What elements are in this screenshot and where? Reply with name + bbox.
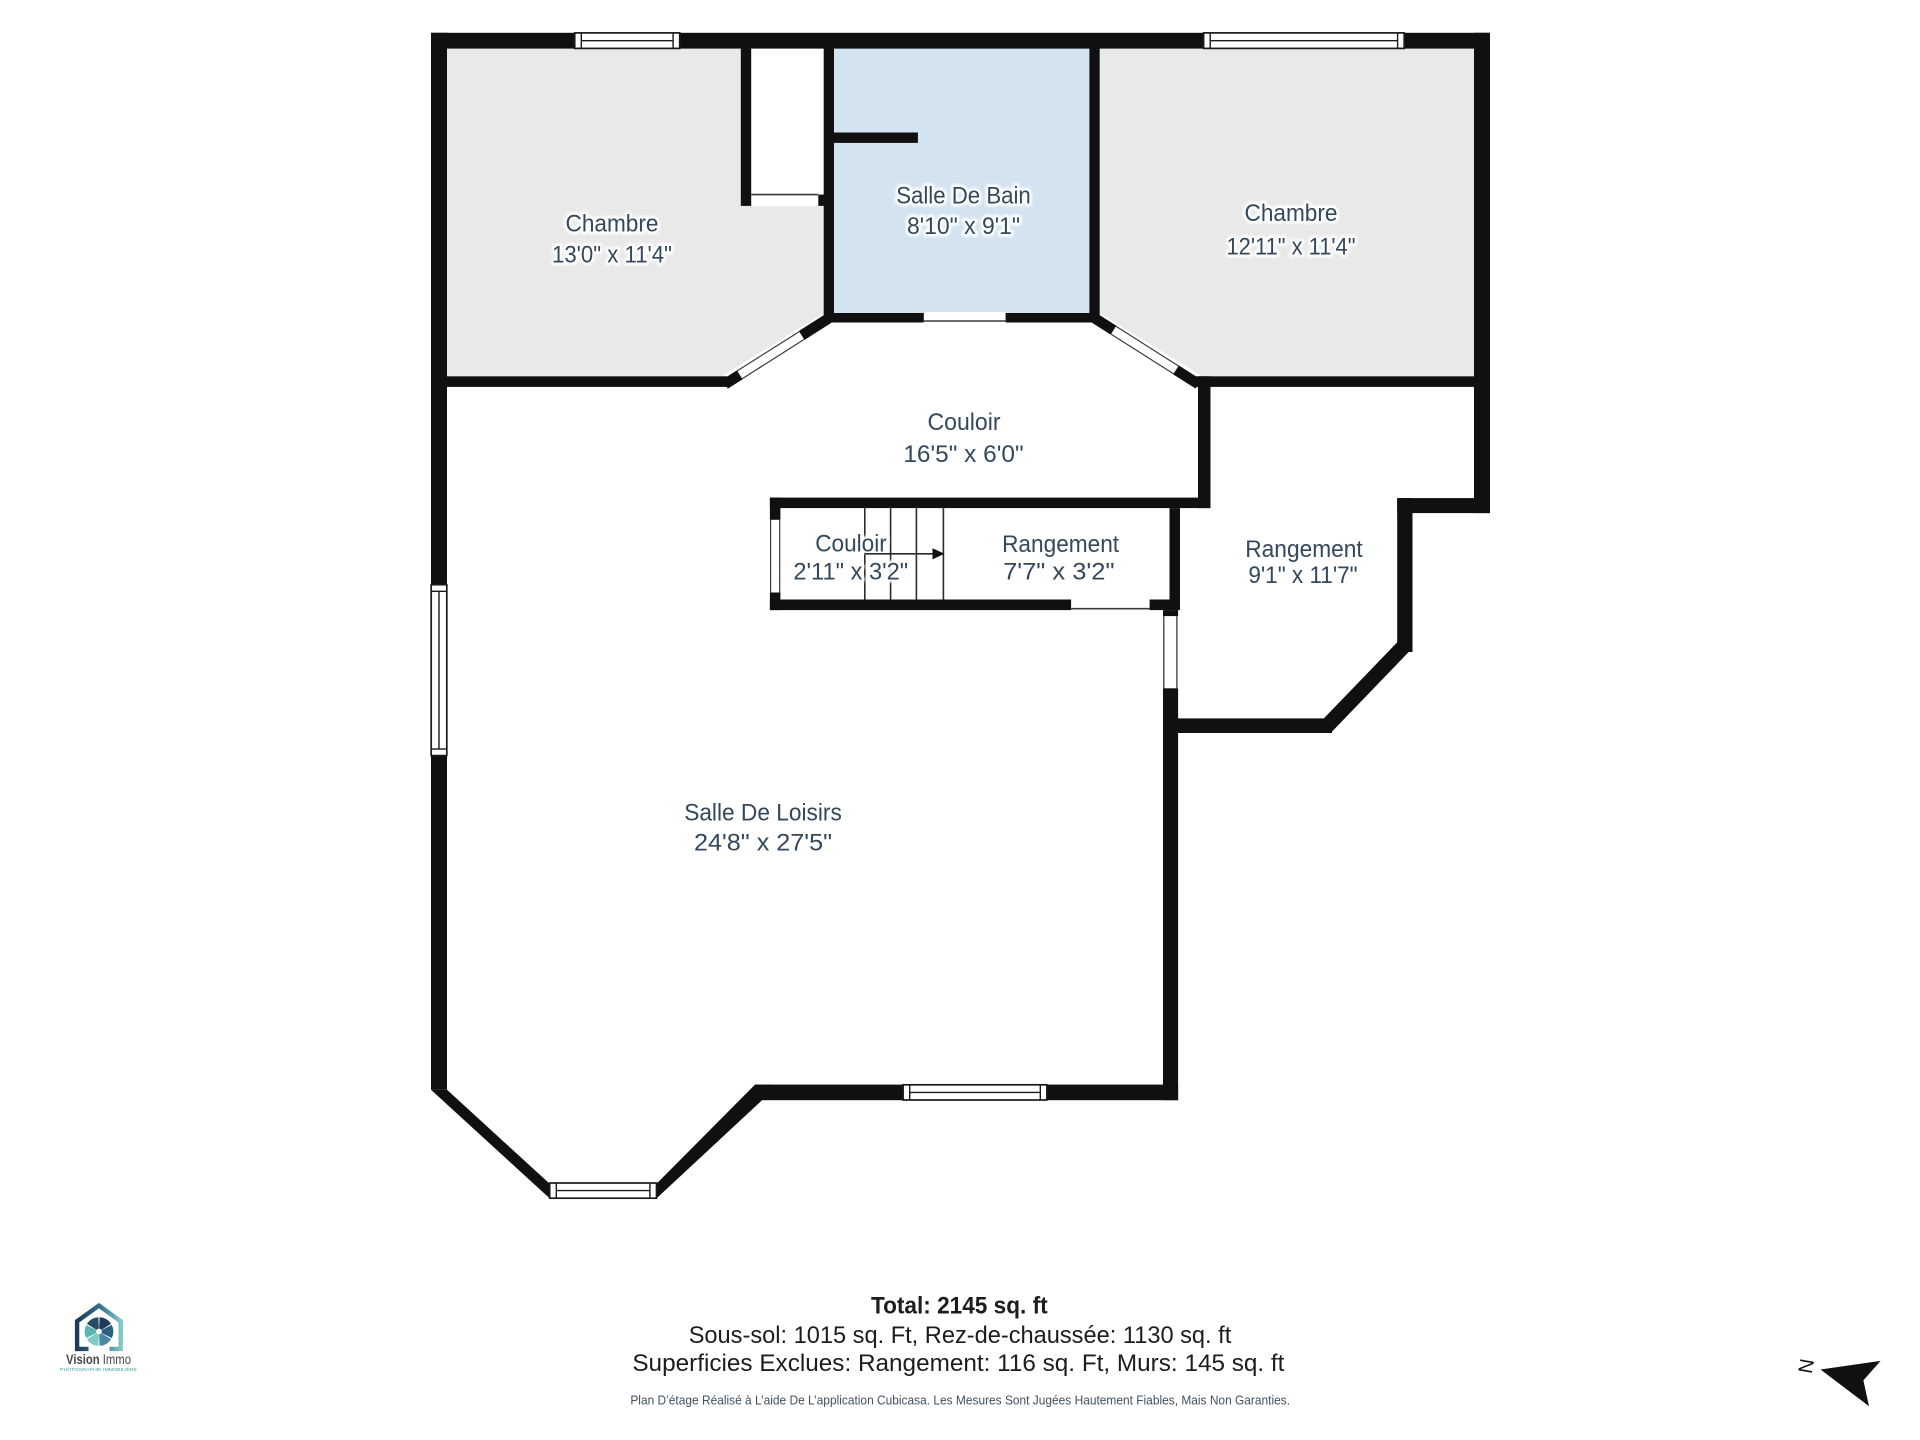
svg-text:Couloir: Couloir [928,409,1001,436]
svg-text:12'11" x 11'4": 12'11" x 11'4" [1227,233,1356,260]
svg-text:Sous-sol: 1015 sq. Ft, Rez-de-: Sous-sol: 1015 sq. Ft, Rez-de-chaussée: … [689,1322,1232,1349]
svg-text:Salle De Bain: Salle De Bain [896,183,1031,210]
svg-text:13'0" x 11'4": 13'0" x 11'4" [552,241,672,268]
svg-text:Rangement: Rangement [1002,531,1119,558]
svg-text:Vision Immo: Vision Immo [66,1352,131,1367]
svg-text:PHOTOGRAPHIE IMMOBILIÈRE: PHOTOGRAPHIE IMMOBILIÈRE [60,1366,137,1372]
svg-text:Plan D’étage Réalisé à L’aide: Plan D’étage Réalisé à L’aide De L’appli… [630,1392,1290,1407]
svg-text:7'7" x 3'2": 7'7" x 3'2" [1003,559,1114,586]
svg-text:8'10" x 9'1": 8'10" x 9'1" [907,213,1020,240]
svg-text:Total: 2145 sq. ft: Total: 2145 sq. ft [871,1292,1048,1319]
svg-text:24'8" x 27'5": 24'8" x 27'5" [694,830,832,857]
svg-text:Chambre: Chambre [566,211,659,238]
svg-text:9'1" x 11'7": 9'1" x 11'7" [1248,562,1357,589]
svg-text:Rangement: Rangement [1245,536,1363,563]
svg-text:Salle De Loisirs: Salle De Loisirs [684,800,842,827]
svg-text:2'11" x 3'2": 2'11" x 3'2" [793,559,908,586]
svg-text:Chambre: Chambre [1245,200,1338,227]
svg-text:Superficies Exclues: Rangement: Superficies Exclues: Rangement: 116 sq. … [632,1350,1284,1377]
svg-text:16'5" x 6'0": 16'5" x 6'0" [903,441,1023,468]
